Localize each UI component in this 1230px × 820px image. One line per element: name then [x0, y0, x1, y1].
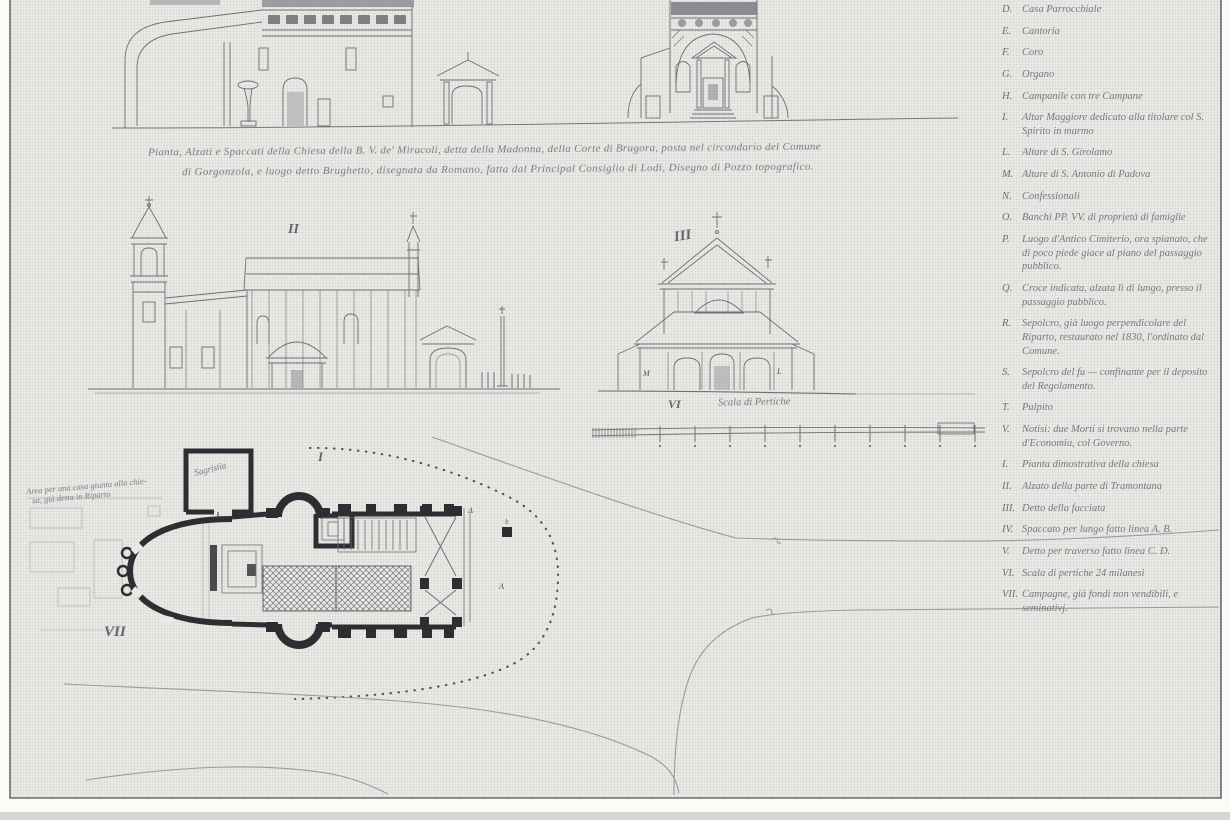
legend-item-text: Altare di S. Girolamo	[1022, 146, 1218, 160]
legend-item-key: G.	[1002, 68, 1022, 82]
legend-item-key: T.	[1002, 401, 1022, 415]
front-letter-right: L	[776, 367, 782, 376]
legend-item: E.Cantoria	[1002, 25, 1218, 39]
legend-item-key: Q.	[1002, 282, 1022, 309]
legend-item-text: Banchi PP. VV. di proprietà di famiglie	[1022, 211, 1218, 225]
front-elevation-label: III	[673, 227, 693, 247]
legend-item: O.Banchi PP. VV. di proprietà di famigli…	[1002, 211, 1218, 225]
legend-item-text: Notisi: due Morti si trovano nella parte…	[1022, 423, 1218, 450]
legend-item-text: Sepolcro, già luogo perpendicolare del R…	[1022, 317, 1218, 358]
legend-item-text: Pianta dimostrativa della chiesa	[1022, 458, 1218, 472]
legend-item: R.Sepolcro, già luogo perpendicolare del…	[1002, 317, 1218, 358]
legend-item-key: V.	[1002, 545, 1022, 559]
legend-item: I.Altar Maggiore dedicato alla titolare …	[1002, 111, 1218, 138]
legend-item-key: V.	[1002, 423, 1022, 450]
legend-item-key: IV.	[1002, 523, 1022, 537]
legend-item: I.Pianta dimostrativa della chiesa	[1002, 458, 1218, 472]
legend-item-key: R.	[1002, 317, 1022, 358]
legend-item-text: Detto per traverso fatto linea C. D.	[1022, 545, 1218, 559]
legend-item: IV.Spaccato per lungo fatto linea A. B.	[1002, 523, 1218, 537]
legend-item: F.Coro	[1002, 46, 1218, 60]
legend-item-key: N.	[1002, 190, 1022, 204]
scale-bar-label: VI	[668, 397, 681, 412]
legend-item: T.Pulpito	[1002, 401, 1218, 415]
legend-item-text: Croce indicata, alzata lì di lungo, pres…	[1022, 282, 1218, 309]
plan-letter-b: b	[505, 518, 509, 526]
legend-item-text: Scala di pertiche 24 milanesi	[1022, 567, 1218, 581]
legend-item: III.Detto della facciata	[1002, 502, 1218, 516]
plan-area-label: VII	[104, 624, 126, 641]
legend-item-text: Organo	[1022, 68, 1218, 82]
scale-bar-title: Scala di Pertiche	[718, 396, 790, 408]
front-letter-left: M	[642, 369, 651, 378]
legend-item-key: I.	[1002, 458, 1022, 472]
legend-item-key: O.	[1002, 211, 1022, 225]
transverse-section-drawing	[628, 0, 788, 118]
legend-item: G.Organo	[1002, 68, 1218, 82]
legend-item-key: P.	[1002, 233, 1022, 274]
legend-item: Q.Croce indicata, alzata lì di lungo, pr…	[1002, 282, 1218, 309]
front-elevation-drawing: M L	[598, 212, 975, 394]
legend-item-text: Spaccato per lungo fatto linea A. B.	[1022, 523, 1218, 537]
legend-item-key: S.	[1002, 366, 1022, 393]
legend-item: P.Luogo d'Antico Cimiterio, ora spianato…	[1002, 233, 1218, 274]
legend-item: II.Alzato della parte di Tramontana	[1002, 480, 1218, 494]
legend-item-key: H.	[1002, 90, 1022, 104]
legend-item-text: Altar Maggiore dedicato alla titolare co…	[1022, 111, 1218, 138]
legend-item-text: Sepolcro del fu — confinante per il depo…	[1022, 366, 1218, 393]
legend-item-text: Cantoria	[1022, 25, 1218, 39]
legend-item: N.Confessionali	[1002, 190, 1218, 204]
side-elevation-label: II	[288, 222, 299, 238]
legend-item: VI.Scala di pertiche 24 milanesi	[1002, 567, 1218, 581]
legend-item-text: Confessionali	[1022, 190, 1218, 204]
legend-item: H.Campanile con tre Campane	[1002, 90, 1218, 104]
legend: D.Casa ParrocchialeE.CantoriaF.CoroG.Org…	[1002, 3, 1218, 624]
scale-bar	[592, 423, 985, 447]
legend-item-key: D.	[1002, 3, 1022, 17]
floor-plan-label: I	[318, 449, 323, 465]
legend-item-text: Campagne, già fondi non vendibili, e sem…	[1022, 588, 1218, 615]
legend-item-key: III.	[1002, 502, 1022, 516]
legend-item-text: Pulpito	[1022, 401, 1218, 415]
plan-letter-a1: A	[467, 506, 473, 515]
plan-letter-a2: A	[498, 582, 504, 591]
legend-item-text: Alzato della parte di Tramontana	[1022, 480, 1218, 494]
legend-item-text: Luogo d'Antico Cimiterio, ora spianato, …	[1022, 233, 1218, 274]
legend-item-key: E.	[1002, 25, 1022, 39]
legend-item-text: Campanile con tre Campane	[1022, 90, 1218, 104]
ground-line-top	[112, 118, 958, 128]
legend-item-key: VII.	[1002, 588, 1022, 615]
legend-item-key: M.	[1002, 168, 1022, 182]
scanned-architectural-sheet: M L	[0, 0, 1230, 820]
legend-item-key: II.	[1002, 480, 1022, 494]
legend-item-key: F.	[1002, 46, 1022, 60]
legend-item-text: Altare di S. Antonio di Padova	[1022, 168, 1218, 182]
legend-item: V.Detto per traverso fatto linea C. D.	[1002, 545, 1218, 559]
legend-item: L.Altare di S. Girolamo	[1002, 146, 1218, 160]
legend-item-key: L.	[1002, 146, 1022, 160]
legend-item: S.Sepolcro del fu — confinante per il de…	[1002, 366, 1218, 393]
legend-item-text: Casa Parrocchiale	[1022, 3, 1218, 17]
legend-item: V.Notisi: due Morti si trovano nella par…	[1002, 423, 1218, 450]
legend-item: M.Altare di S. Antonio di Padova	[1002, 168, 1218, 182]
legend-item: D.Casa Parrocchiale	[1002, 3, 1218, 17]
side-elevation-drawing	[88, 196, 560, 393]
legend-item-text: Detto della facciata	[1022, 502, 1218, 516]
legend-item-text: Coro	[1022, 46, 1218, 60]
legend-item-key: I.	[1002, 111, 1022, 138]
longitudinal-section-drawing	[125, 0, 499, 128]
legend-item-key: VI.	[1002, 567, 1022, 581]
legend-item: VII.Campagne, già fondi non vendibili, e…	[1002, 588, 1218, 615]
